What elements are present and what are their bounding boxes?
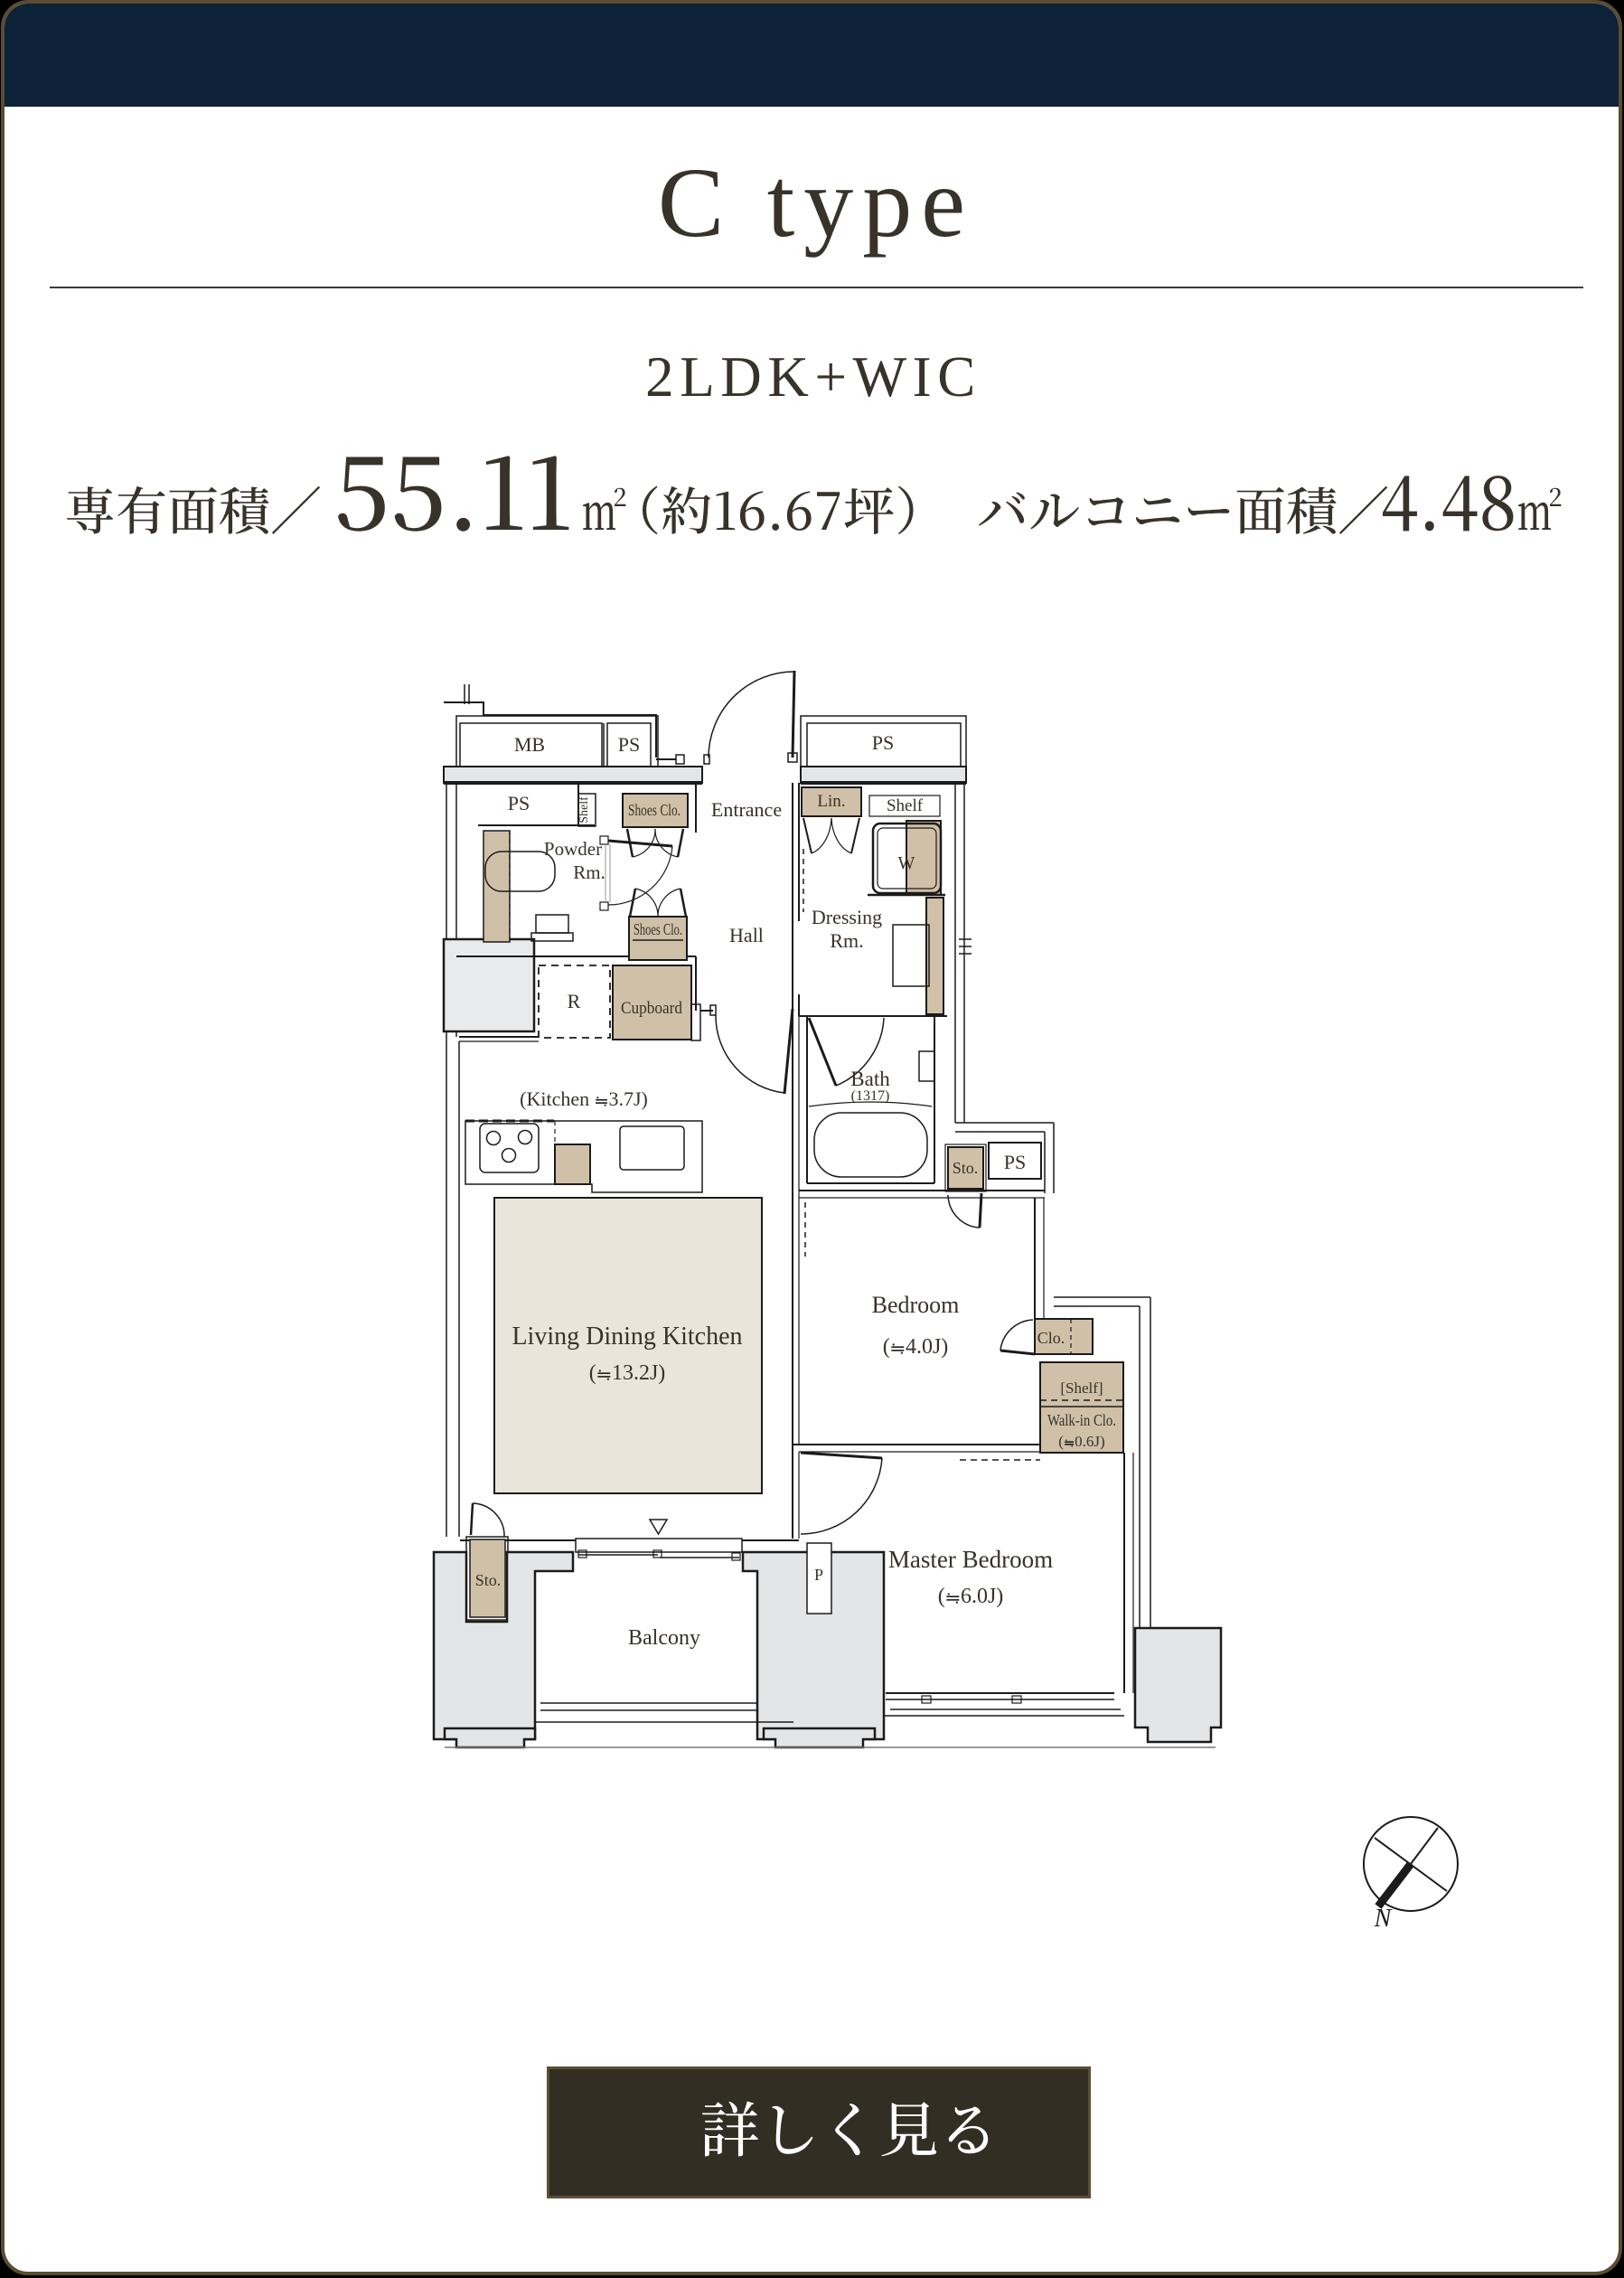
svg-text:4.0J): 4.0J): [906, 1335, 948, 1359]
svg-text:PS: PS: [508, 792, 530, 814]
svg-text:P: P: [814, 1566, 823, 1584]
svg-text:Entrance: Entrance: [711, 798, 782, 821]
svg-text:Cupboard: Cupboard: [621, 999, 682, 1018]
svg-text:Dressing: Dressing: [812, 906, 882, 928]
svg-text:6.0J): 6.0J): [961, 1585, 1003, 1608]
svg-text:Clo.: Clo.: [1037, 1329, 1065, 1347]
svg-text:Shoes Clo.: Shoes Clo.: [628, 801, 681, 819]
svg-text:3.7J): 3.7J): [608, 1087, 647, 1110]
svg-text:(: (: [883, 1335, 890, 1359]
svg-text:Living Dining Kitchen: Living Dining Kitchen: [512, 1323, 742, 1351]
svg-text:(Kitchen: (Kitchen: [520, 1087, 589, 1110]
svg-text:MB: MB: [514, 733, 545, 756]
svg-text:13.2J): 13.2J): [612, 1361, 665, 1385]
svg-text:Shelf: Shelf: [887, 796, 924, 815]
svg-text:Bedroom: Bedroom: [872, 1292, 960, 1318]
svg-text:(: (: [1058, 1433, 1064, 1450]
svg-text:(: (: [938, 1585, 945, 1608]
svg-text:R: R: [568, 990, 581, 1012]
svg-text:Shelf: Shelf: [577, 796, 591, 824]
svg-text:Lin.: Lin.: [817, 792, 845, 811]
svg-text:0.6J): 0.6J): [1075, 1433, 1105, 1450]
svg-text:(: (: [589, 1361, 596, 1385]
svg-text:PS: PS: [1004, 1151, 1026, 1173]
svg-text:Walk-in Clo.: Walk-in Clo.: [1047, 1411, 1116, 1429]
svg-text:PS: PS: [872, 731, 894, 754]
svg-text:Master Bedroom: Master Bedroom: [888, 1546, 1053, 1573]
svg-text:Rm.: Rm.: [830, 929, 863, 952]
svg-text:Sto.: Sto.: [475, 1571, 502, 1589]
svg-text:Balcony: Balcony: [628, 1626, 700, 1650]
svg-text:Shoes Clo.: Shoes Clo.: [634, 920, 682, 938]
svg-text:Powder: Powder: [544, 838, 602, 860]
svg-text:[Shelf]: [Shelf]: [1060, 1379, 1103, 1397]
svg-text:Hall: Hall: [729, 924, 764, 946]
svg-text:Bath: Bath: [850, 1068, 890, 1090]
svg-text:N: N: [1374, 1905, 1393, 1933]
svg-text:PS: PS: [618, 733, 640, 756]
svg-text:Sto.: Sto.: [953, 1159, 979, 1177]
svg-text:W: W: [898, 853, 915, 873]
svg-text:Rm.: Rm.: [573, 861, 605, 883]
